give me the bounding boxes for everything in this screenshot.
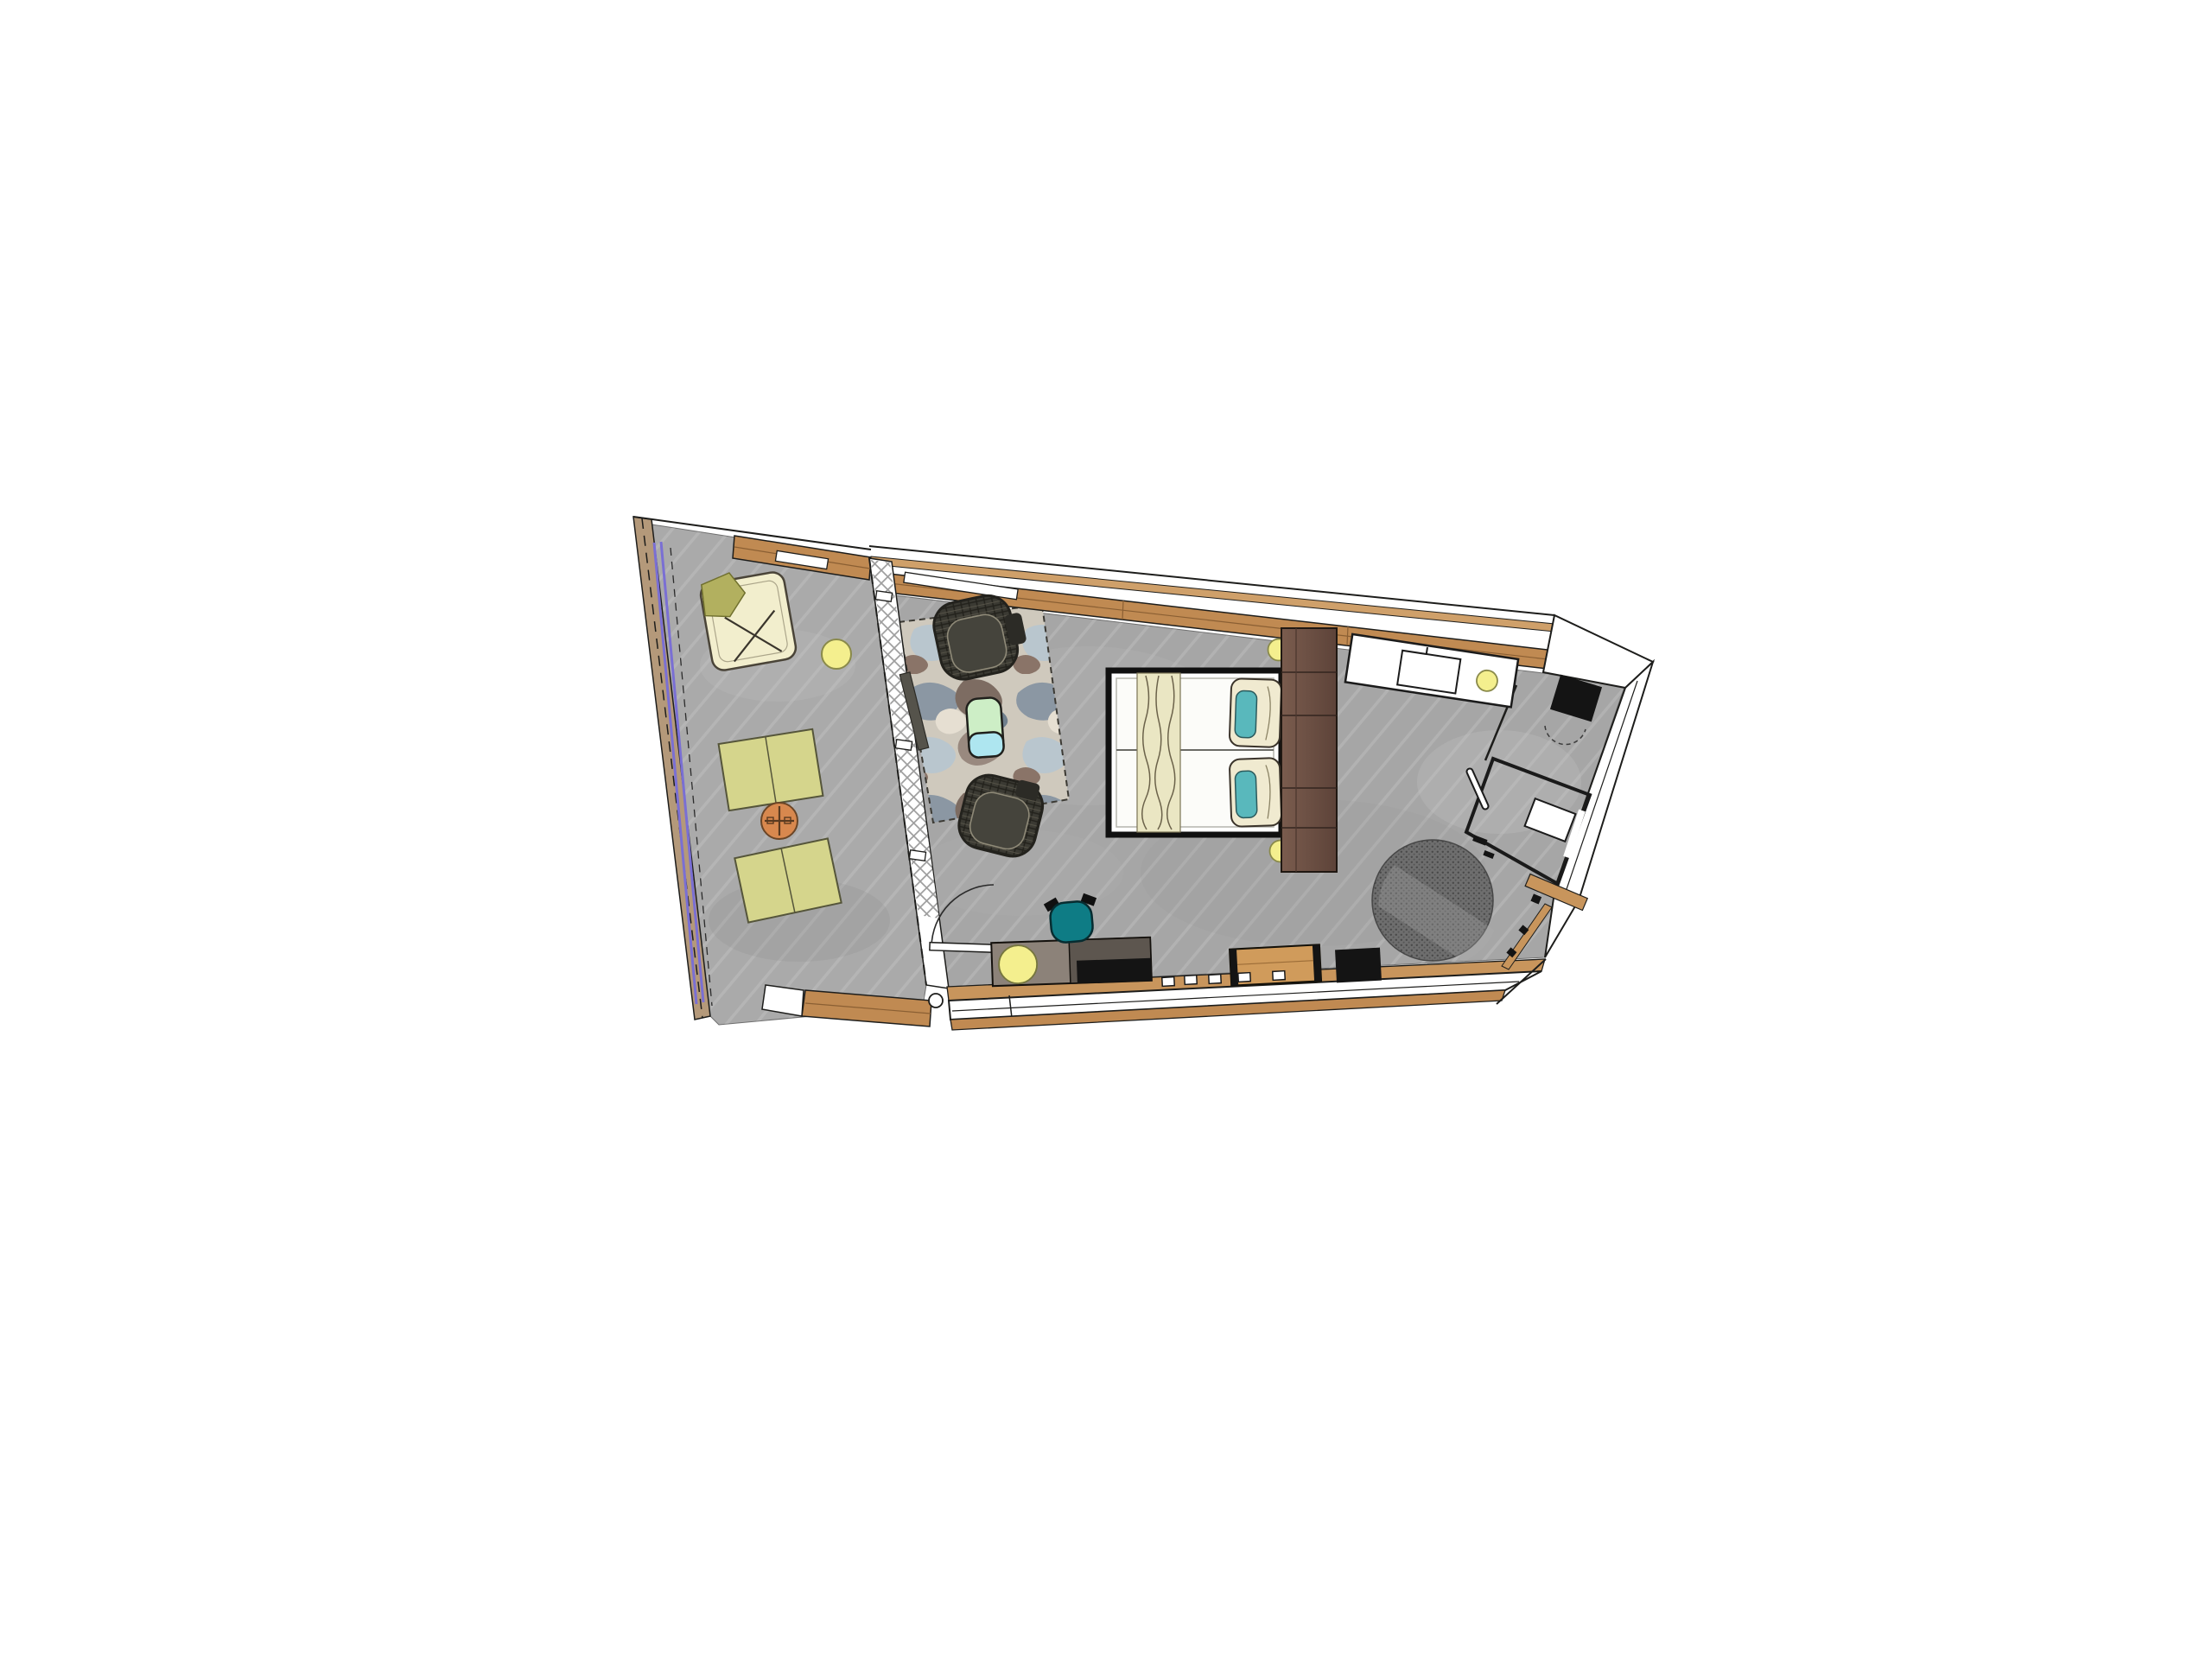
partition-mullion <box>875 591 892 601</box>
mullion-tab <box>1162 977 1175 987</box>
floor-plan-page: { "canvas": { "width": 2560, "height": 1… <box>0 0 2212 1659</box>
pillow-top <box>1230 678 1282 747</box>
chair-seat <box>1049 900 1094 944</box>
lounge-chair <box>697 563 798 671</box>
partition-mullion <box>909 850 925 861</box>
pillow-bottom <box>1230 758 1282 827</box>
mullion-tab <box>1209 975 1222 984</box>
desk-drawer <box>1077 958 1152 983</box>
pillow-accent <box>1235 771 1257 818</box>
desk-lamp <box>998 944 1038 984</box>
sun-lounger-1 <box>719 729 823 810</box>
nesting-side-tables <box>966 697 1005 759</box>
side-table-small <box>968 732 1004 759</box>
basin-faucet <box>1427 647 1427 654</box>
partition-mullion <box>895 740 912 750</box>
mullion-tab <box>1185 976 1198 985</box>
partition-door-leaf <box>930 943 995 953</box>
floor-plan <box>0 0 2212 1659</box>
minibar-cabinet <box>1335 948 1382 983</box>
mullion-tab <box>1238 973 1251 982</box>
pillow-accent <box>1235 690 1257 738</box>
desk-unit <box>991 938 1152 986</box>
terrace-side-table <box>822 639 851 669</box>
mullion-tab <box>1273 971 1286 981</box>
terrace-coffee-table <box>761 803 798 839</box>
partition-post <box>929 994 943 1007</box>
headboard-wall <box>1281 628 1337 872</box>
